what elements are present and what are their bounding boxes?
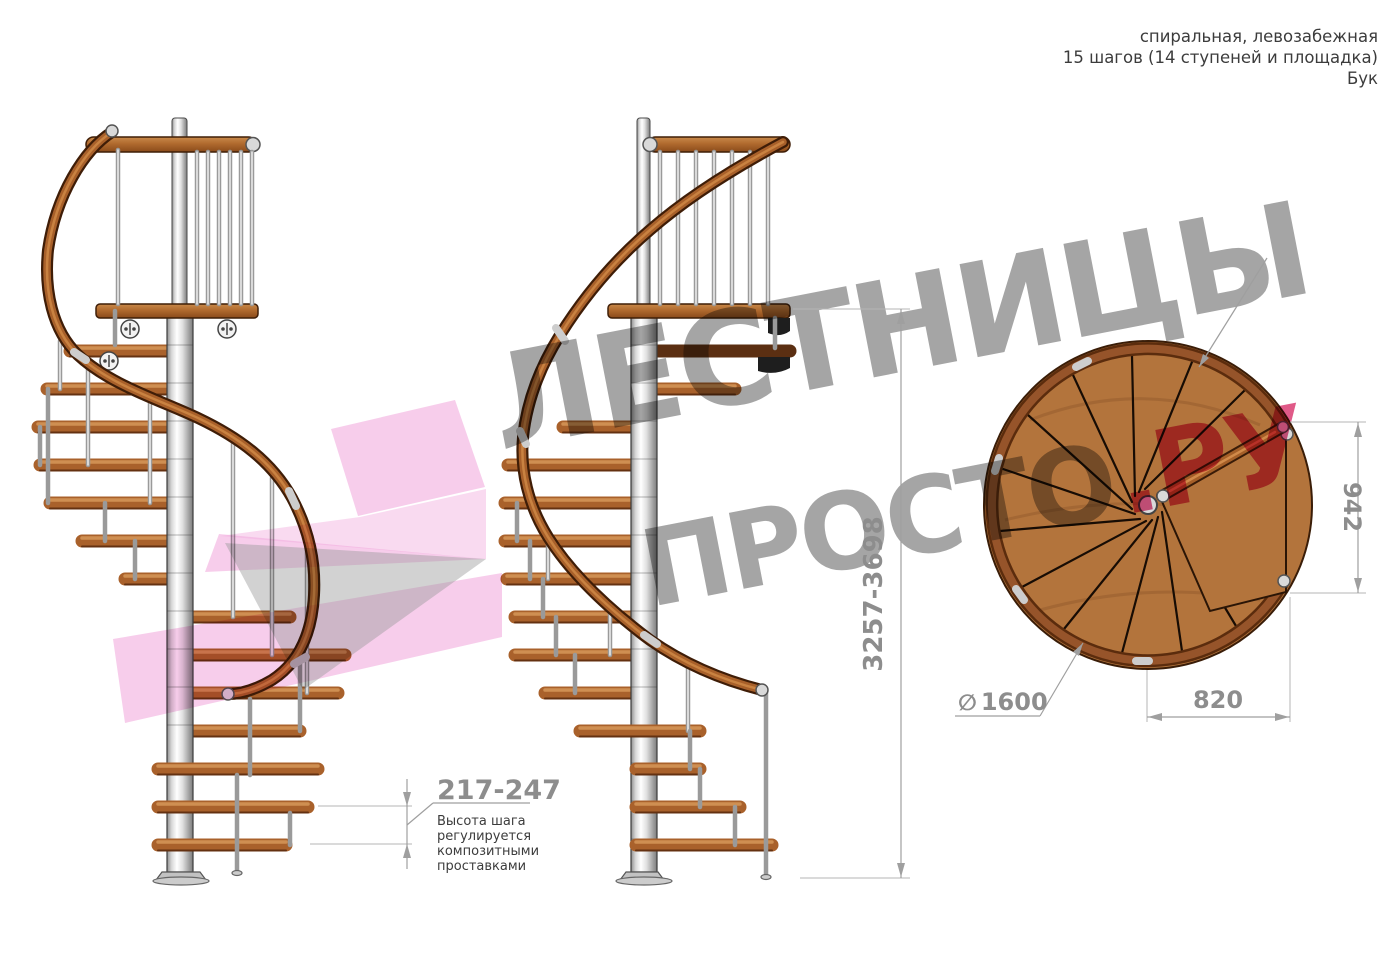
plan-rail-end <box>1278 575 1290 587</box>
diameter-label: ∅1600 <box>958 688 1048 716</box>
dimension-diameter: ∅1600 <box>955 643 1083 716</box>
middle-view-handrail-cap <box>643 138 657 152</box>
step-height-value: 217-247 <box>437 775 561 806</box>
dimension-step-height: 217-247 Высота шага регулируется компози… <box>310 775 561 874</box>
staircase-drawing: ЛЕСТНИЦЫ ПРОСТО.РУ 3257-3698 217-247 Выс… <box>0 0 1400 953</box>
left-view-center-pole <box>167 306 193 872</box>
left-view-handrail-cap <box>246 138 260 152</box>
left-view-platform-balusters <box>197 152 252 304</box>
left-view-landing-platform <box>96 304 258 318</box>
total-height-value: 3257-3698 <box>859 516 889 672</box>
diameter-value: 1600 <box>981 688 1048 716</box>
step-height-note-2: регулируется <box>437 829 531 844</box>
left-view-bracket-medallion <box>121 320 139 338</box>
left-view-handrail-start-cap <box>106 125 118 137</box>
middle-view-bottom-treads <box>580 728 772 851</box>
step-height-note-1: Высота шага <box>437 814 526 829</box>
landing-width-value: 820 <box>1193 686 1243 714</box>
left-view-bracket-medallion <box>218 320 236 338</box>
landing-depth-value: 942 <box>1338 482 1366 532</box>
step-height-note-4: проставками <box>437 859 526 874</box>
drawing-sheet: спиральная, левозабежная 15 шагов (14 ст… <box>0 0 1400 953</box>
diameter-symbol: ∅ <box>958 691 977 716</box>
left-elevation-view <box>38 118 345 885</box>
step-height-note-3: композитными <box>437 844 539 859</box>
middle-view-rod-foot <box>761 875 771 880</box>
left-view-rod-foot <box>232 871 242 876</box>
middle-view-handrail-end-cap <box>756 684 768 696</box>
